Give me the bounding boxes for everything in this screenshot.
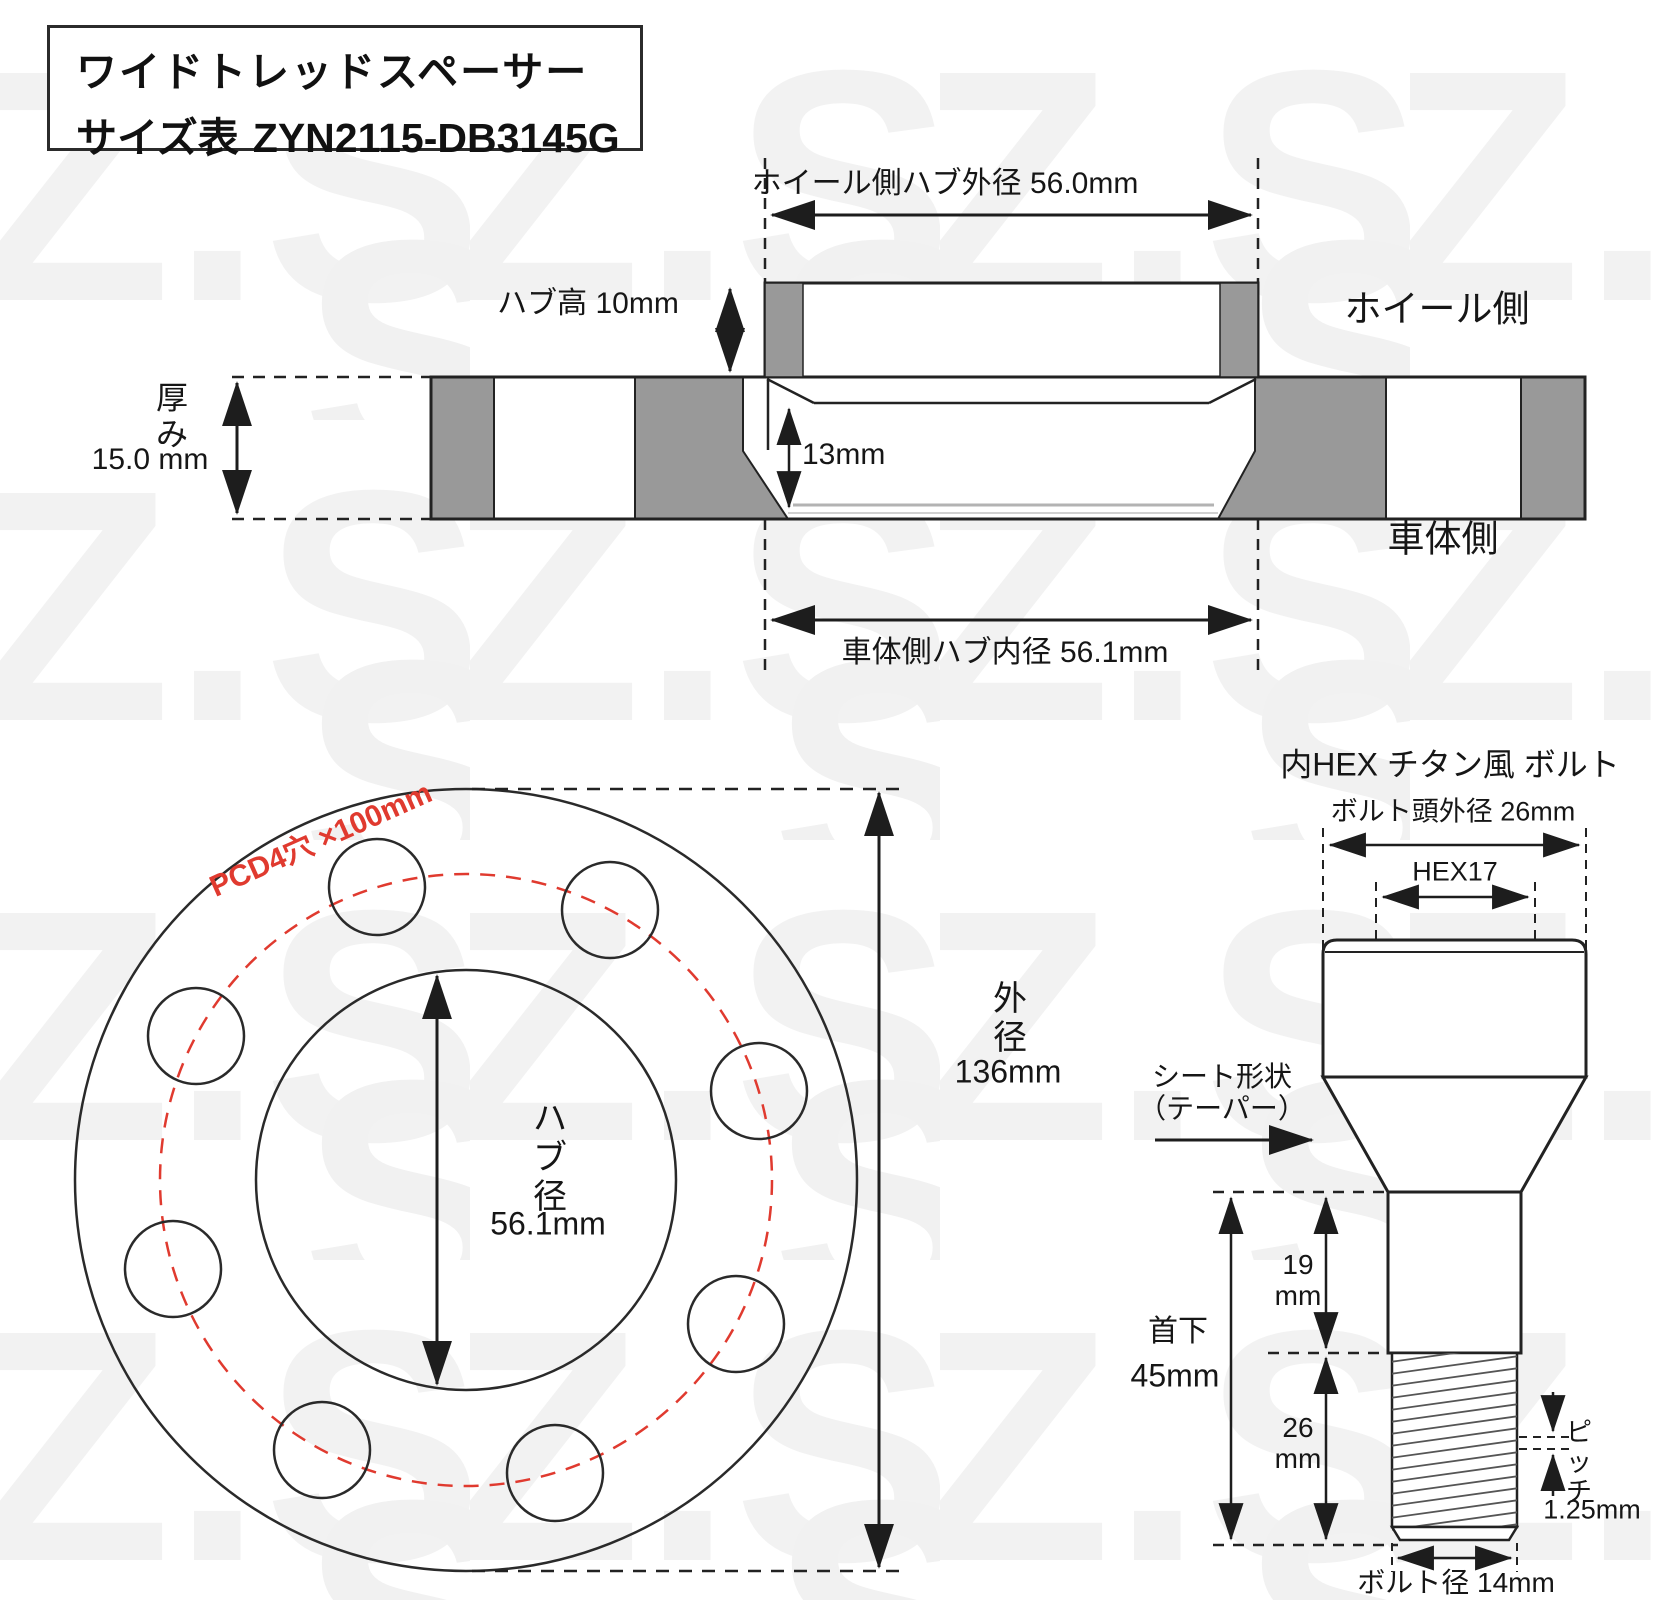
hub-dia-value: 56.1mm bbox=[490, 1206, 606, 1243]
seat-shape-label: シート形状 （テーパー） bbox=[1138, 1061, 1306, 1125]
thickness-value: 15.0 mm bbox=[92, 443, 209, 478]
bolt-head bbox=[1323, 940, 1586, 1077]
bolt-title: 内HEX チタン風 ボルト bbox=[1280, 747, 1620, 784]
outer-circle bbox=[75, 789, 857, 1571]
bolt-shank bbox=[1388, 1192, 1521, 1353]
plate-gray-band bbox=[1521, 377, 1585, 519]
seat-shape-line2: （テーパー） bbox=[1138, 1093, 1306, 1125]
bolt-head-od-label: ボルト頭外径 26mm bbox=[1331, 796, 1576, 827]
boss-gray-band bbox=[1220, 283, 1258, 377]
bolt-dia-label: ボルト径 14mm bbox=[1357, 1567, 1555, 1599]
pitch-value: 1.25mm bbox=[1543, 1494, 1641, 1525]
neck-label: 首下 bbox=[1148, 1315, 1208, 1350]
hub-dia-label: ハブ径 bbox=[528, 1100, 572, 1216]
boss-gray-band bbox=[765, 283, 803, 377]
bolt-taper-seat bbox=[1323, 1077, 1586, 1192]
body-side-label: 車体側 bbox=[1388, 519, 1499, 562]
hub-boss bbox=[765, 283, 1258, 377]
seat-shape-line1: シート形状 bbox=[1138, 1061, 1306, 1093]
upper-length-unit: mm bbox=[1275, 1281, 1322, 1312]
pcd-circle bbox=[160, 874, 772, 1486]
spacer-plate bbox=[431, 377, 1585, 519]
cross-section-view bbox=[232, 158, 1585, 672]
size-sheet-line: サイズ表ZYN2115-DB3145G bbox=[76, 104, 640, 164]
hub-bore-circle bbox=[256, 970, 676, 1390]
lower-length-unit: mm bbox=[1275, 1444, 1322, 1475]
title-box: ワイドトレッドスペーサー サイズ表ZYN2115-DB3145G bbox=[47, 25, 643, 151]
lower-length-value: 26 bbox=[1275, 1413, 1322, 1444]
plate-gray-band bbox=[431, 377, 494, 519]
lower-length-label: 26 mm bbox=[1275, 1413, 1322, 1475]
outer-dia-value: 136mm bbox=[955, 1054, 1062, 1091]
bolt-view bbox=[1155, 828, 1586, 1572]
outer-dia-label: 外径 bbox=[988, 980, 1032, 1058]
upper-length-value: 19 bbox=[1275, 1250, 1322, 1281]
bore-depth-label: 13mm bbox=[802, 438, 885, 473]
size-sheet-label: サイズ表 bbox=[76, 115, 239, 161]
bolt-thread bbox=[1392, 1353, 1517, 1527]
upper-length-label: 19 mm bbox=[1275, 1250, 1322, 1312]
hub-height-label: ハブ高 10mm bbox=[497, 287, 679, 322]
bolt-holes bbox=[125, 839, 807, 1521]
spacer-size-sheet: Z.S .S bbox=[0, 0, 1669, 1600]
model-code: ZYN2115-DB3145G bbox=[253, 115, 620, 161]
front-view bbox=[75, 789, 900, 1571]
bolt-tip-chamfer bbox=[1392, 1527, 1517, 1540]
product-title: ワイドトレッドスペーサー bbox=[76, 38, 640, 98]
bolt-hex-label: HEX17 bbox=[1412, 856, 1498, 887]
body-hub-id-label: 車体側ハブ内径 56.1mm bbox=[842, 636, 1169, 671]
neck-value: 45mm bbox=[1131, 1358, 1220, 1395]
wheel-hub-od-label: ホイール側ハブ外径 56.0mm bbox=[752, 167, 1139, 202]
wheel-side-label: ホイール側 bbox=[1345, 289, 1530, 332]
